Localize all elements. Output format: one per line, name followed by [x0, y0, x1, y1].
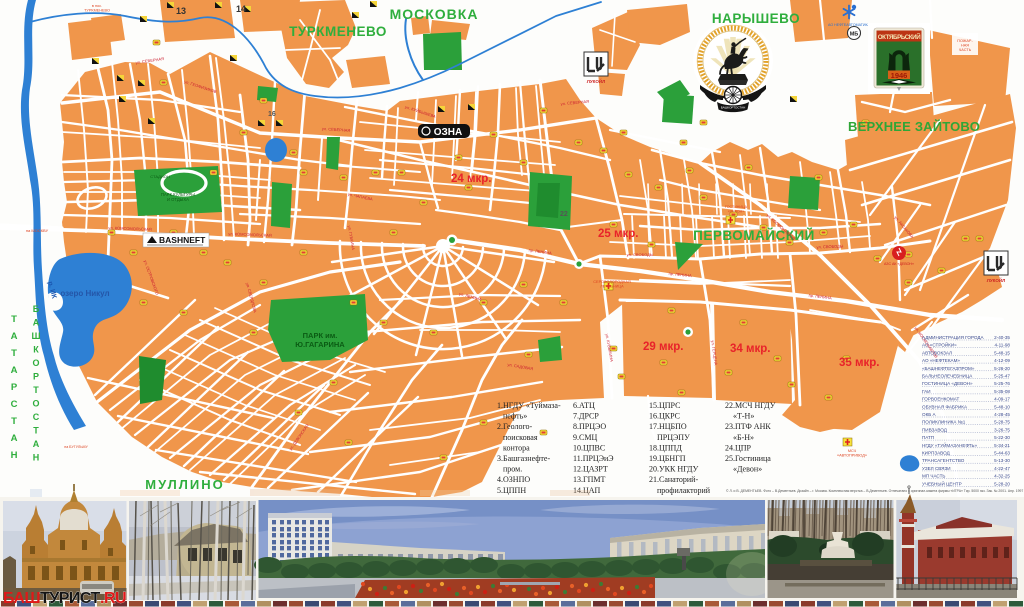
svg-text:Н: Н [33, 453, 40, 463]
svg-text:11.ПРЦЭиЭ: 11.ПРЦЭиЭ [573, 454, 614, 463]
svg-text:ТУРИСТ: ТУРИСТ [40, 590, 101, 607]
svg-text:2.Геолого-: 2.Геолого- [497, 422, 533, 431]
svg-text:АО «СТРОЙКИ»: АО «СТРОЙКИ» [922, 341, 957, 348]
svg-text:А: А [33, 439, 40, 449]
svg-text:1.НГДУ «Туймаза-: 1.НГДУ «Туймаза- [497, 401, 561, 410]
svg-text:24.ЦПР: 24.ЦПР [725, 443, 752, 452]
svg-text:МУЛЛИНО: МУЛЛИНО [145, 477, 225, 492]
svg-text:АЗС АК «ДЕВОН»: АЗС АК «ДЕВОН» [884, 262, 914, 266]
svg-text:ТУРКМЕНЕВО: ТУРКМЕНЕВО [84, 9, 110, 13]
svg-text:5-28-75: 5-28-75 [994, 420, 1010, 425]
svg-text:ВЕРХНЕЕ ЗАЙТОВО: ВЕРХНЕЕ ЗАЙТОВО [848, 119, 980, 134]
svg-text:ПОЛИКЛИНИКА №1: ПОЛИКЛИНИКА №1 [922, 420, 966, 425]
svg-text:ОКБ А: ОКБ А [922, 412, 937, 417]
svg-text:9.СМЦ: 9.СМЦ [573, 433, 597, 442]
svg-text:ТУРКМЕНЕВО: ТУРКМЕНЕВО [289, 24, 387, 39]
svg-text:пром.: пром. [497, 465, 522, 474]
svg-text:25.Гостиница: 25.Гостиница [725, 454, 771, 463]
svg-text:5-26-20: 5-26-20 [994, 366, 1010, 371]
svg-text:МОСКОВКА: МОСКОВКА [390, 6, 479, 22]
svg-text:4-32-25: 4-32-25 [994, 474, 1010, 479]
svg-text:22.МСЧ НГДУ: 22.МСЧ НГДУ [725, 401, 776, 410]
svg-text:«ДЕВОН»: «ДЕВОН» [728, 209, 745, 213]
svg-text:ГОСТИНИЦА «ДЕВОН»: ГОСТИНИЦА «ДЕВОН» [922, 381, 973, 386]
svg-text:«Девон»: «Девон» [725, 465, 762, 474]
svg-text:3-26-75: 3-26-75 [994, 427, 1010, 432]
svg-text:на МОСКВУ: на МОСКВУ [26, 228, 49, 233]
svg-text:НАЯ: НАЯ [961, 44, 969, 48]
svg-text:ОБУВНАЯ ФАБРИКА: ОБУВНАЯ ФАБРИКА [922, 404, 968, 409]
svg-text:4.ОЗНПО: 4.ОЗНПО [497, 475, 530, 484]
svg-text:БАШКОРТОСТАН: БАШКОРТОСТАН [721, 106, 746, 110]
svg-text:О: О [32, 399, 39, 409]
svg-text:НГДУ «ТУЙМАЗАНЕФТЬ»: НГДУ «ТУЙМАЗАНЕФТЬ» [922, 441, 978, 448]
svg-text:5-48-15: 5-48-15 [994, 350, 1010, 355]
svg-text:ГАИ: ГАИ [922, 389, 931, 394]
svg-text:А: А [11, 331, 18, 342]
svg-text:34 мкр.: 34 мкр. [730, 343, 770, 355]
svg-text:И ОТДЫХА: И ОТДЫХА [167, 197, 189, 202]
svg-text:поисковая: поисковая [497, 433, 538, 442]
svg-text:на БУГУЛЬМУ: на БУГУЛЬМУ [64, 445, 88, 449]
svg-text:ГОРВОЕНКОМАТ: ГОРВОЕНКОМАТ [922, 397, 959, 402]
svg-text:BASHNEFT: BASHNEFT [159, 235, 206, 245]
svg-text:5-48-10: 5-48-10 [994, 404, 1010, 409]
svg-text:25 мкр.: 25 мкр. [598, 228, 638, 240]
svg-text:КИРПЗАВОД: КИРПЗАВОД [922, 451, 951, 456]
svg-text:23.ПТФ АНК: 23.ПТФ АНК [725, 422, 771, 431]
svg-text:ОКТЯБРЬСКИЙ: ОКТЯБРЬСКИЙ [878, 33, 921, 41]
svg-text:Б: Б [33, 304, 40, 314]
svg-text:АДМИНИСТРАЦИЯ ГОРОДА: АДМИНИСТРАЦИЯ ГОРОДА [922, 335, 985, 340]
svg-text:Р: Р [33, 372, 39, 382]
svg-text:СТАДИОН: СТАДИОН [150, 174, 170, 179]
svg-text:АВТОВОКЗАЛ: АВТОВОКЗАЛ [922, 350, 952, 355]
svg-text:ЛЕЧЕБНИЦА: ЛЕЧЕБНИЦА [600, 285, 624, 289]
svg-text:5-22-30: 5-22-30 [994, 435, 1010, 440]
svg-text:ЛУКОЙЛ: ЛУКОЙЛ [987, 276, 1006, 283]
svg-text:Р: Р [11, 382, 18, 393]
svg-text:нефть»: нефть» [497, 412, 527, 421]
svg-text:профилакторий: профилакторий [649, 486, 711, 495]
svg-text:24 мкр.: 24 мкр. [451, 173, 491, 185]
svg-text:Ш: Ш [31, 331, 40, 341]
svg-text:© Л. и В. ДЕМЕНТЬЕВ. Фото – В: © Л. и В. ДЕМЕНТЬЕВ. Фото – В.Дементьев.… [726, 489, 1024, 493]
svg-text:ЛУКОЙЛ: ЛУКОЙЛ [587, 77, 606, 84]
svg-text:А: А [11, 433, 18, 444]
svg-text:А: А [33, 318, 40, 328]
svg-text:22: 22 [560, 211, 568, 218]
svg-text:5-35-08: 5-35-08 [994, 389, 1010, 394]
svg-text:5.ЦППН: 5.ЦППН [497, 486, 526, 495]
svg-text:ПИВЗАВОД: ПИВЗАВОД [922, 427, 948, 432]
svg-text:16.ЦКРС: 16.ЦКРС [649, 412, 680, 421]
svg-text:ПАТП: ПАТП [922, 435, 934, 440]
svg-text:«Т-Н»: «Т-Н» [725, 412, 754, 421]
svg-text:ЧАСТЬ: ЧАСТЬ [959, 48, 972, 52]
svg-text:35 мкр.: 35 мкр. [839, 357, 879, 369]
svg-text:А: А [11, 365, 18, 376]
svg-text:ПАРК им.: ПАРК им. [303, 331, 338, 340]
svg-text:МП ЧАСТЬ: МП ЧАСТЬ [922, 474, 945, 479]
svg-text:ТРАНСАГЕНТСТВО: ТРАНСАГЕНТСТВО [922, 458, 965, 463]
svg-text:УЧЕБНЫЙ ЦЕНТР: УЧЕБНЫЙ ЦЕНТР [922, 479, 962, 486]
svg-text:Т: Т [33, 385, 39, 395]
svg-text:18.ЦППД: 18.ЦППД [649, 443, 682, 452]
svg-text:5-25-47: 5-25-47 [994, 374, 1010, 379]
svg-text:О: О [32, 358, 39, 368]
svg-text:21.Санаторий-: 21.Санаторий- [649, 475, 698, 484]
svg-text:7.ДРСР: 7.ДРСР [573, 412, 599, 421]
svg-text:БАЛЬНЕОЛЕЧЕБНИЦА: БАЛЬНЕОЛЕЧЕБНИЦА [922, 374, 973, 379]
svg-text:4-09-17: 4-09-17 [994, 397, 1010, 402]
svg-text:АО НЕФТЕАВТОМАТИКА: АО НЕФТЕАВТОМАТИКА [828, 23, 871, 27]
svg-text:ГОСТИНИЦА: ГОСТИНИЦА [725, 205, 748, 209]
svg-text:16: 16 [268, 111, 276, 118]
svg-text:Т: Т [33, 426, 39, 436]
svg-text:НАРЫШЕВО: НАРЫШЕВО [712, 11, 800, 26]
svg-text:БАШ: БАШ [3, 590, 40, 607]
svg-text:Ю.ГАГАРИНА: Ю.ГАГАРИНА [295, 340, 345, 349]
svg-text:4-28-45: 4-28-45 [994, 412, 1010, 417]
svg-text:«Б-Н»: «Б-Н» [725, 433, 754, 442]
svg-text:4-12-09: 4-12-09 [994, 358, 1010, 363]
svg-text:14: 14 [236, 4, 246, 14]
svg-text:5-34-21: 5-34-21 [994, 443, 1010, 448]
svg-text:29 мкр.: 29 мкр. [643, 341, 683, 353]
svg-text:ОЗНА: ОЗНА [434, 127, 463, 138]
svg-text:6.АТЦ: 6.АТЦ [573, 401, 595, 410]
svg-text:УЗЕЛ СВЯЗИ: УЗЕЛ СВЯЗИ [922, 466, 951, 471]
svg-text:8.ПРЦЭО: 8.ПРЦЭО [573, 422, 606, 431]
svg-text:в пос.: в пос. [92, 4, 102, 8]
svg-text:ул. СВОБОДЫ: ул. СВОБОДЫ [816, 244, 843, 250]
svg-text:АО «НЕФТЕКАМ»: АО «НЕФТЕКАМ» [922, 358, 960, 363]
svg-text:СЕРОВОДОРОДНАЯ: СЕРОВОДОРОДНАЯ [593, 280, 631, 284]
svg-text:3.Башгазнефте-: 3.Башгазнефте- [497, 454, 550, 463]
svg-text:С: С [33, 412, 40, 422]
svg-text:5-28-20: 5-28-20 [994, 481, 1010, 486]
svg-text:10.ЦПВС: 10.ЦПВС [573, 443, 605, 452]
svg-text:МБ: МБ [850, 32, 859, 38]
svg-text:5-13-30: 5-13-30 [994, 458, 1010, 463]
svg-text:ПРЦЭПУ: ПРЦЭПУ [649, 433, 690, 442]
svg-text:15.ЦПРС: 15.ЦПРС [649, 401, 680, 410]
svg-text:17.НЦБПО: 17.НЦБПО [649, 422, 687, 431]
svg-text:ПЕРВОМАЙСКИЙ: ПЕРВОМАЙСКИЙ [693, 228, 815, 243]
svg-text:5-25-76: 5-25-76 [994, 381, 1010, 386]
svg-text:20.УКК НГДУ: 20.УКК НГДУ [649, 465, 699, 474]
svg-text:С: С [11, 399, 18, 410]
svg-text:4-22-47: 4-22-47 [994, 466, 1010, 471]
svg-text:Н: Н [11, 450, 18, 461]
svg-text:19.ЦБНГП: 19.ЦБНГП [649, 454, 686, 463]
svg-text:2-40-35: 2-40-35 [994, 335, 1010, 340]
svg-text:контора: контора [497, 443, 530, 452]
svg-text:ул. СВОБОДЫ: ул. СВОБОДЫ [627, 252, 654, 257]
svg-text:Т: Т [11, 348, 17, 359]
svg-text:Т: Т [11, 314, 17, 325]
svg-text:ПОЖАР-: ПОЖАР- [957, 39, 973, 43]
svg-text:Т: Т [11, 416, 17, 427]
svg-text:13: 13 [176, 6, 186, 16]
svg-text:«АВТОПРИВОД»: «АВТОПРИВОД» [837, 454, 867, 458]
svg-text:5-44-63: 5-44-63 [994, 451, 1010, 456]
svg-text:.RU: .RU [100, 590, 126, 607]
svg-text:13.ГПМТ: 13.ГПМТ [573, 475, 606, 484]
svg-text:4-11-98: 4-11-98 [995, 343, 1011, 348]
svg-text:озеро Никул: озеро Никул [60, 289, 109, 298]
svg-text:К: К [33, 345, 39, 355]
svg-text:«БАШНЕФТЕГАЗПРОМ»: «БАШНЕФТЕГАЗПРОМ» [922, 366, 975, 371]
svg-text:МСЧ: МСЧ [848, 449, 857, 453]
svg-text:1946: 1946 [891, 71, 908, 80]
svg-text:12.ЦАЗРТ: 12.ЦАЗРТ [573, 465, 608, 474]
